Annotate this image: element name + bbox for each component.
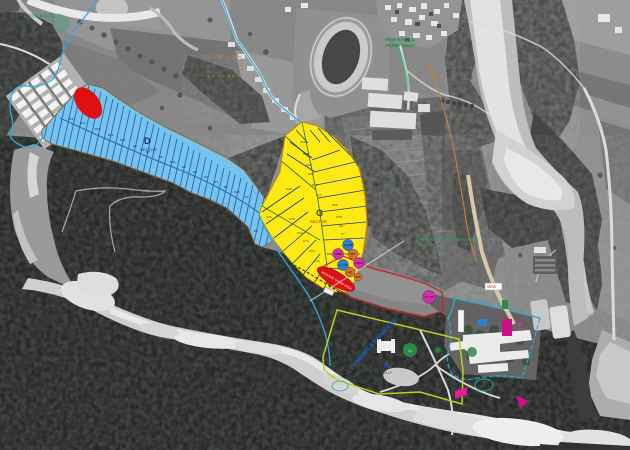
svg-text:SPT: SPT <box>350 252 355 256</box>
svg-text:C21: C21 <box>303 152 309 156</box>
svg-text:G: G <box>316 208 323 218</box>
svg-text:A: A <box>384 361 390 370</box>
svg-text:C9: C9 <box>339 224 343 228</box>
svg-text:RALLY: RALLY <box>381 371 392 375</box>
svg-text:C22: C22 <box>306 163 312 167</box>
svg-text:HQ: HQ <box>348 270 352 274</box>
svg-text:D13: D13 <box>108 133 114 137</box>
svg-text:MP AREA: MP AREA <box>468 290 486 295</box>
svg-text:ENTRANCE: ENTRANCE <box>24 14 55 20</box>
svg-text:D3: D3 <box>182 165 186 169</box>
svg-text:C10: C10 <box>314 259 320 263</box>
svg-text:D1: D1 <box>245 195 249 199</box>
svg-text:CHEM BN KAPTOEN TUKING: CHEM BN KAPTOEN TUKING <box>416 237 479 242</box>
svg-text:C7: C7 <box>341 232 345 236</box>
svg-text:D6: D6 <box>204 175 208 179</box>
svg-text:D8: D8 <box>193 170 197 174</box>
svg-text:247 MP: 247 MP <box>425 295 434 299</box>
svg-text:D7: D7 <box>146 150 150 154</box>
svg-text:C20: C20 <box>300 140 306 144</box>
svg-text:D1: D1 <box>254 229 258 233</box>
svg-text:C18: C18 <box>289 217 295 221</box>
svg-text:C16: C16 <box>312 183 318 187</box>
svg-text:D9: D9 <box>133 144 137 148</box>
svg-text:D4: D4 <box>214 180 218 184</box>
svg-text:D2: D2 <box>224 185 228 189</box>
svg-text:C25: C25 <box>266 215 272 219</box>
svg-text:FERRYMEAD: FERRYMEAD <box>386 43 415 48</box>
svg-text:C14: C14 <box>297 231 303 235</box>
svg-text:C44: C44 <box>286 187 292 191</box>
svg-text:D5: D5 <box>159 155 163 159</box>
svg-text:C19: C19 <box>332 203 338 207</box>
svg-text:C74: C74 <box>303 239 309 243</box>
svg-text:POW RAMP &: POW RAMP & <box>385 37 415 42</box>
svg-text:C17: C17 <box>80 121 86 125</box>
svg-text:D24: D24 <box>234 190 240 194</box>
svg-text:VIEW: VIEW <box>487 285 497 289</box>
svg-text:SPT: SPT <box>355 275 360 279</box>
svg-text:2 BDE: 2 BDE <box>334 252 342 256</box>
svg-text:C23: C23 <box>308 172 314 176</box>
svg-text:C15: C15 <box>68 117 74 121</box>
svg-text:C15: C15 <box>336 215 342 219</box>
svg-text:CP: CP <box>408 349 412 353</box>
svg-text:D15: D15 <box>95 127 101 131</box>
svg-text:1-7 INF: 1-7 INF <box>339 263 348 267</box>
svg-text:D11: D11 <box>120 138 126 142</box>
svg-text:D: D <box>144 136 151 146</box>
svg-text:SECTOR: SECTOR <box>310 219 327 224</box>
svg-text:D41: D41 <box>170 160 176 164</box>
svg-text:3 BDE: 3 BDE <box>355 261 363 265</box>
svg-text:1-5 INF: 1-5 INF <box>344 243 353 247</box>
svg-text:C12: C12 <box>309 249 315 253</box>
svg-text:C17: C17 <box>316 193 322 197</box>
